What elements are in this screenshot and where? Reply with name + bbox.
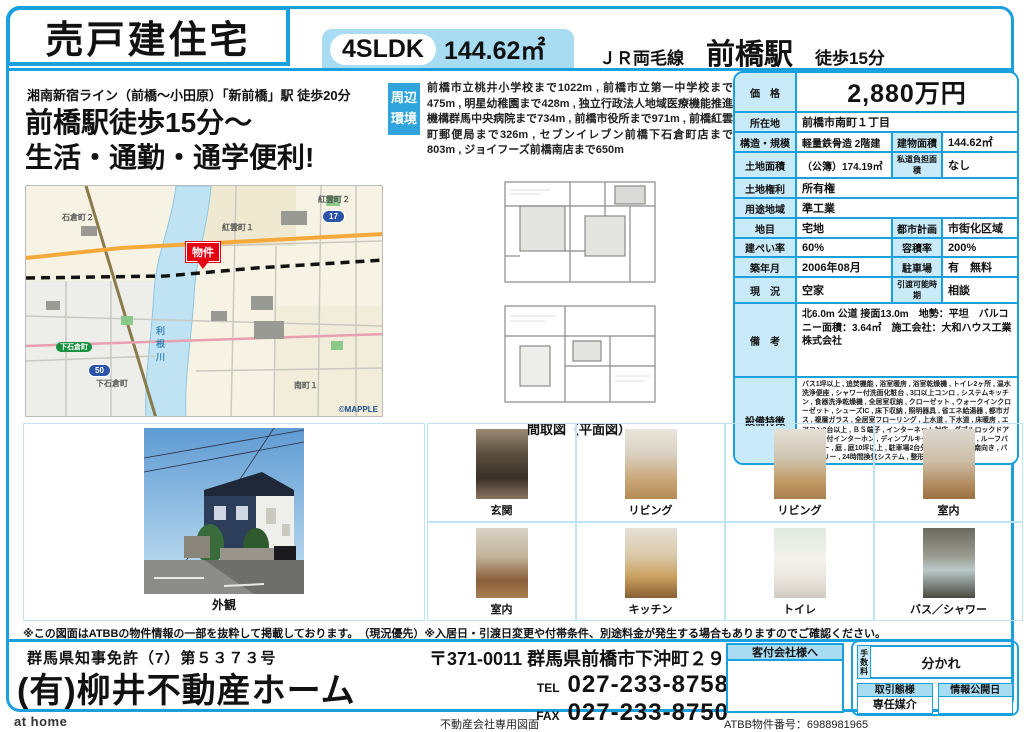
building-area-table-label: 建物面積 <box>891 133 943 151</box>
map-town-minamimachi: 南町１ <box>294 380 318 391</box>
photo-cell-bath: バス／シャワー <box>874 522 1023 621</box>
room-photo-1 <box>923 429 975 499</box>
walk-time: 徒歩15分 <box>815 44 885 69</box>
photo-caption: 玄関 <box>491 502 513 518</box>
photo-cell-kitchen: キッチン <box>576 522 725 621</box>
document-type-note: 不動産会社専用図面 <box>440 716 539 732</box>
land-category-label: 地目 <box>735 219 797 237</box>
price-label: 価 格 <box>735 73 797 111</box>
layout-label: 4SLDK <box>330 34 436 65</box>
deal-type-box: 取引態様 専任媒介 <box>857 683 933 714</box>
row-notes: 備 考 北6.0m 公道 接面13.0m 地勢：平坦 バルコニー面積：3.64㎡… <box>735 304 1017 378</box>
notes-label: 備 考 <box>735 304 797 376</box>
price-value: 2,880万円 <box>797 73 1017 111</box>
deal-type-label: 取引態様 <box>857 683 933 697</box>
floorplan-figure <box>455 175 705 417</box>
fax-number: 027-233-8750 <box>568 699 729 727</box>
company-name: (有)柳井不動産ホーム <box>17 663 356 712</box>
row-price: 価 格 2,880万円 <box>735 73 1017 113</box>
photo-cell-living-2: リビング <box>725 423 874 522</box>
map-town-kounancho1: 紅雲町１ <box>222 222 254 233</box>
catch-headline-2: 生活・通勤・通学便利! <box>25 136 314 176</box>
map-road-pill: 下石倉町 <box>56 342 92 352</box>
athome-logo: at home <box>14 714 67 729</box>
photo-caption: 室内 <box>938 502 960 518</box>
property-type-banner: 売戸建住宅 <box>6 6 290 66</box>
deal-type-value: 専任媒介 <box>857 697 933 714</box>
zoning-label: 用途地域 <box>735 199 797 217</box>
map-route-shield-17: 17 <box>322 210 345 223</box>
interior-photo-grid: 玄関 リビング リビング 室内 室内 キッチン <box>427 423 1023 621</box>
surroundings-label-line2: 環境 <box>391 109 417 130</box>
photo-caption: バス／シャワー <box>910 601 987 617</box>
fax-label: FAX <box>536 709 559 723</box>
built-label: 築年月 <box>735 258 797 276</box>
genkan-photo <box>476 429 528 499</box>
station-info: ＪＲ両毛線 前橋駅 徒歩15分 <box>599 31 1014 73</box>
coverage-label: 建ぺい率 <box>735 239 797 256</box>
tel-label: TEL <box>537 681 560 695</box>
fee-label: 手数料 <box>857 645 871 679</box>
property-details-table: 価 格 2,880万円 所在地 前橋市南町１丁目 構造・規模 軽量鉄骨造 2階建… <box>733 71 1019 465</box>
floorplan-drawing <box>465 176 695 416</box>
photo-caption: キッチン <box>629 601 673 617</box>
living-photo-2 <box>774 429 826 499</box>
photo-cell-room-1: 室内 <box>874 423 1023 522</box>
agent-note-box: 客付会社様へ <box>726 643 844 713</box>
row-land-category: 地目 宅地 都市計画 市街化区域 <box>735 219 1017 239</box>
publish-date-value <box>938 697 1014 714</box>
location-label: 所在地 <box>735 113 797 131</box>
photo-cell-genkan: 玄関 <box>427 423 576 522</box>
tel-row: TEL 027-233-8758 <box>429 671 729 699</box>
publish-date-label: 情報公開日 <box>938 683 1014 697</box>
bath-photo <box>923 528 975 598</box>
delivery-value: 相談 <box>943 278 1017 302</box>
deal-mini-row: 取引態様 専任媒介 情報公開日 <box>857 683 1013 714</box>
building-area-value: 144.62㎡ <box>943 133 1017 151</box>
map-property-marker: 物件 <box>186 242 220 262</box>
structure-value: 軽量鉄骨造 2階建 <box>797 133 891 151</box>
map-credit: ©MAPPLE <box>339 405 378 414</box>
far-value: 200% <box>943 239 1017 256</box>
photo-caption: リビング <box>778 502 822 518</box>
fee-value: 分かれ <box>871 645 1013 679</box>
city-plan-label: 都市計画 <box>891 219 943 237</box>
status-value: 空家 <box>797 278 891 302</box>
layout-area-badge: 4SLDK 144.62㎡ <box>322 29 574 69</box>
map-route-shield-50: 50 <box>88 364 111 377</box>
row-land-rights: 土地権利 所有権 <box>735 179 1017 199</box>
catch-headline-1: 前橋駅徒歩15分～ <box>25 101 252 141</box>
structure-label: 構造・規模 <box>735 133 797 151</box>
kitchen-photo <box>625 528 677 598</box>
flyer-border: 売戸建住宅 4SLDK 144.62㎡ ＪＲ両毛線 前橋駅 徒歩15分 湘南新宿… <box>6 6 1014 712</box>
row-structure: 構造・規模 軽量鉄骨造 2階建 建物面積 144.62㎡ <box>735 133 1017 153</box>
location-value: 前橋市南町１丁目 <box>797 113 1017 131</box>
company-address: 〒371-0011 群馬県前橋市下沖町２９－４ <box>429 645 729 671</box>
agent-note-body <box>726 659 844 713</box>
exterior-photo-cell: 外観 <box>23 423 425 621</box>
photo-caption: トイレ <box>783 601 816 617</box>
toilet-photo <box>774 528 826 598</box>
photo-cell-living-1: リビング <box>576 423 725 522</box>
surroundings-label: 周辺 環境 <box>388 83 420 135</box>
atbb-number: ATBB物件番号：6988981965 <box>724 716 868 732</box>
row-built: 築年月 2006年08月 駐車場 有 無料 <box>735 258 1017 278</box>
private-road-label: 私道負担面積 <box>891 153 943 177</box>
zoning-value: 準工業 <box>797 199 1017 217</box>
photo-cell-toilet: トイレ <box>725 522 874 621</box>
land-area-value: （公簿）174.19㎡ <box>797 153 891 177</box>
photo-caption: リビング <box>629 502 673 518</box>
exterior-caption: 外観 <box>212 596 236 613</box>
row-coverage: 建ぺい率 60% 容積率 200% <box>735 239 1017 258</box>
private-road-value: なし <box>943 153 1017 177</box>
map-town-kounancho2: 紅雲町２ <box>318 194 350 205</box>
notes-value: 北6.0m 公道 接面13.0m 地勢：平坦 バルコニー面積：3.64㎡ 施工会… <box>797 304 1017 376</box>
row-zoning: 用途地域 準工業 <box>735 199 1017 219</box>
station-name: 前橋駅 <box>706 31 793 73</box>
row-land-area: 土地面積 （公簿）174.19㎡ 私道負担面積 なし <box>735 153 1017 179</box>
map-town-ishikuracho2: 石倉町２ <box>62 212 94 223</box>
publish-date-box: 情報公開日 <box>938 683 1014 714</box>
agent-note-header: 客付会社様へ <box>726 643 844 659</box>
city-plan-value: 市街化区域 <box>943 219 1017 237</box>
far-label: 容積率 <box>891 239 943 256</box>
delivery-label: 引渡可能時期 <box>891 278 943 302</box>
contact-block: 〒371-0011 群馬県前橋市下沖町２９－４ TEL 027-233-8758… <box>429 645 729 727</box>
parking-label: 駐車場 <box>891 258 943 276</box>
property-type-text: 売戸建住宅 <box>45 9 250 64</box>
room-photo-2 <box>476 528 528 598</box>
deal-info-box: 手数料 分かれ 取引態様 専任媒介 情報公開日 <box>851 640 1019 716</box>
status-label: 現 況 <box>735 278 797 302</box>
map-river-label: 利根川 <box>154 326 167 365</box>
living-photo-1 <box>625 429 677 499</box>
map-town-shimoishikuracho: 下石倉町 <box>96 378 128 389</box>
photo-cell-room-2: 室内 <box>427 522 576 621</box>
exterior-photo <box>144 428 304 594</box>
building-area-label: 144.62㎡ <box>444 31 545 67</box>
surroundings-text: 前橋市立桃井小学校まで1022m , 前橋市立第一中学校まで475m , 明星幼… <box>427 81 733 159</box>
parking-value: 有 無料 <box>943 258 1017 276</box>
built-value: 2006年08月 <box>797 258 891 276</box>
location-map: 石倉町２ 紅雲町１ 紅雲町２ 下石倉町 南町１ 利根川 下石倉町 17 50 物… <box>25 185 383 417</box>
coverage-value: 60% <box>797 239 891 256</box>
land-category-value: 宅地 <box>797 219 891 237</box>
land-area-label: 土地面積 <box>735 153 797 177</box>
row-status: 現 況 空家 引渡可能時期 相談 <box>735 278 1017 304</box>
flyer-page: 売戸建住宅 4SLDK 144.62㎡ ＪＲ両毛線 前橋駅 徒歩15分 湘南新宿… <box>0 0 1024 732</box>
fee-row: 手数料 分かれ <box>857 645 1013 679</box>
rail-line-label: ＪＲ両毛線 <box>599 44 684 69</box>
tel-number: 027-233-8758 <box>568 671 729 699</box>
surroundings-label-line1: 周辺 <box>391 88 417 109</box>
row-location: 所在地 前橋市南町１丁目 <box>735 113 1017 133</box>
land-rights-value: 所有権 <box>797 179 1017 197</box>
photo-caption: 室内 <box>491 601 513 617</box>
land-rights-label: 土地権利 <box>735 179 797 197</box>
